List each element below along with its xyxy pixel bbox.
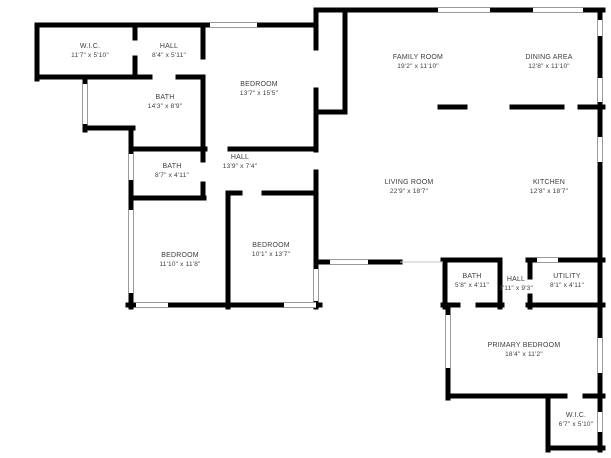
room-dimensions: 5'8" x 4'11" — [455, 282, 489, 289]
room-dimensions: 18'4" x 11'2" — [505, 351, 543, 358]
plan-background — [0, 0, 611, 458]
room-name: UTILITY — [553, 273, 581, 280]
room-dimensions: 12'8" x 18'7" — [530, 188, 569, 195]
room-name: HALL — [231, 154, 249, 161]
room-dimensions: 8'4" x 5'11" — [152, 52, 186, 59]
room-name: BATH — [463, 273, 482, 280]
floor-plan-page: W.I.C.11'7" x 5'10"HALL8'4" x 5'11"BATH1… — [0, 0, 611, 458]
room-dimensions: 11'7" x 5'10" — [71, 52, 109, 59]
room-dimensions: 10'1" x 13'7" — [252, 251, 291, 258]
room-name: BEDROOM — [240, 81, 278, 88]
room-name: PRIMARY BEDROOM — [488, 342, 561, 349]
room-dimensions: 13'9" x 7'4" — [223, 163, 258, 170]
room-dimensions: 12'8" x 11'10" — [528, 63, 570, 70]
floor-plan-drawing: W.I.C.11'7" x 5'10"HALL8'4" x 5'11"BATH1… — [0, 0, 611, 458]
room-name: BATH — [156, 94, 175, 101]
room-name: BEDROOM — [252, 242, 290, 249]
room-dimensions: 14'3" x 8'9" — [148, 103, 183, 110]
room-name: FAMILY ROOM — [393, 54, 443, 61]
room-name: DINING AREA — [525, 54, 572, 61]
room-name: BATH — [163, 163, 182, 170]
room-dimensions: 13'7" x 15'5" — [240, 90, 279, 97]
room-dimensions: 11'10" x 11'8" — [159, 261, 201, 268]
room-name: HALL — [160, 43, 178, 50]
room-name: LIVING ROOM — [385, 179, 434, 186]
room-name: BEDROOM — [161, 252, 199, 259]
room-dimensions: 22'9" x 18'7" — [390, 188, 429, 195]
room-dimensions: 19'2" x 11'10" — [397, 63, 439, 70]
room-name: KITCHEN — [533, 179, 565, 186]
room-dimensions: 6'7" x 5'10" — [559, 421, 594, 428]
room-name: W.I.C. — [80, 43, 100, 50]
room-dimensions: 8'1" x 4'11" — [550, 282, 584, 289]
room-dimensions: 3'11" x 9'3" — [499, 285, 533, 292]
room-name: HALL — [507, 276, 525, 283]
room-dimensions: 8'7" x 4'11" — [155, 172, 189, 179]
room-name: W.I.C. — [566, 412, 586, 419]
